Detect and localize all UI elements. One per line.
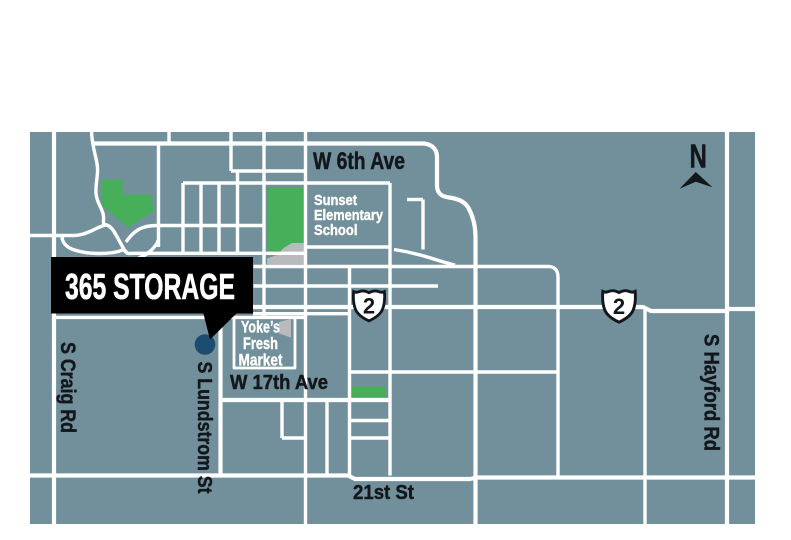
svg-text:Market: Market <box>239 351 283 370</box>
svg-text:S Craig Rd: S Craig Rd <box>56 342 79 433</box>
svg-text:S Lundstrom St: S Lundstrom St <box>193 362 215 494</box>
svg-text:School: School <box>314 222 358 239</box>
svg-text:21st St: 21st St <box>353 481 414 504</box>
svg-text:2: 2 <box>363 294 375 319</box>
svg-text:W 17th Ave: W 17th Ave <box>230 372 328 394</box>
svg-text:W 6th Ave: W 6th Ave <box>313 148 405 175</box>
svg-text:N: N <box>690 139 707 176</box>
svg-text:2: 2 <box>613 294 625 319</box>
svg-text:S Hayford Rd: S Hayford Rd <box>700 334 723 451</box>
svg-text:365 STORAGE: 365 STORAGE <box>65 266 235 307</box>
